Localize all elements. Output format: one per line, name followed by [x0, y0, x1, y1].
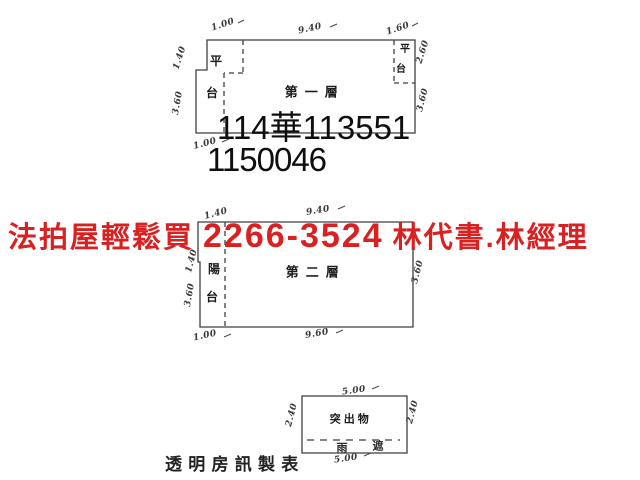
ad-banner: 法拍屋輕鬆買2266-3524林代書.林經理 [8, 219, 589, 253]
scanned-floorplan-page: 第一層 平 台 平 台 1.00 9.40 1.60 1.40 3.60 2.6… [0, 0, 640, 480]
protrusion-sub-char-2: 遮 [373, 442, 384, 453]
floor2-title: 第二層 [282, 266, 346, 279]
registry-number-line2: 1150046 [207, 143, 326, 176]
floor2-balcony-char-2: 台 [206, 291, 218, 303]
floor1-right-annex-char-1: 平 [400, 45, 410, 55]
registry-number-line1: 114華113551 [217, 111, 410, 144]
floor1-left-annex-char-1: 平 [210, 55, 222, 67]
ad-phone-number: 2266-3524 [203, 217, 384, 255]
floor2-balcony-char-1: 陽 [208, 263, 220, 275]
maker-credit-line: 透 明 房 訊 製 表 [165, 456, 299, 473]
floor1-title: 第一層 [281, 86, 345, 99]
protrusion-title: 突出物 [328, 415, 372, 426]
ad-slogan: 法拍屋輕鬆買 [8, 222, 194, 254]
floor1-right-annex-char-2: 台 [396, 65, 406, 75]
ad-contact-names: 林代書.林經理 [393, 222, 589, 254]
floor1-left-annex-char-2: 台 [206, 87, 218, 99]
